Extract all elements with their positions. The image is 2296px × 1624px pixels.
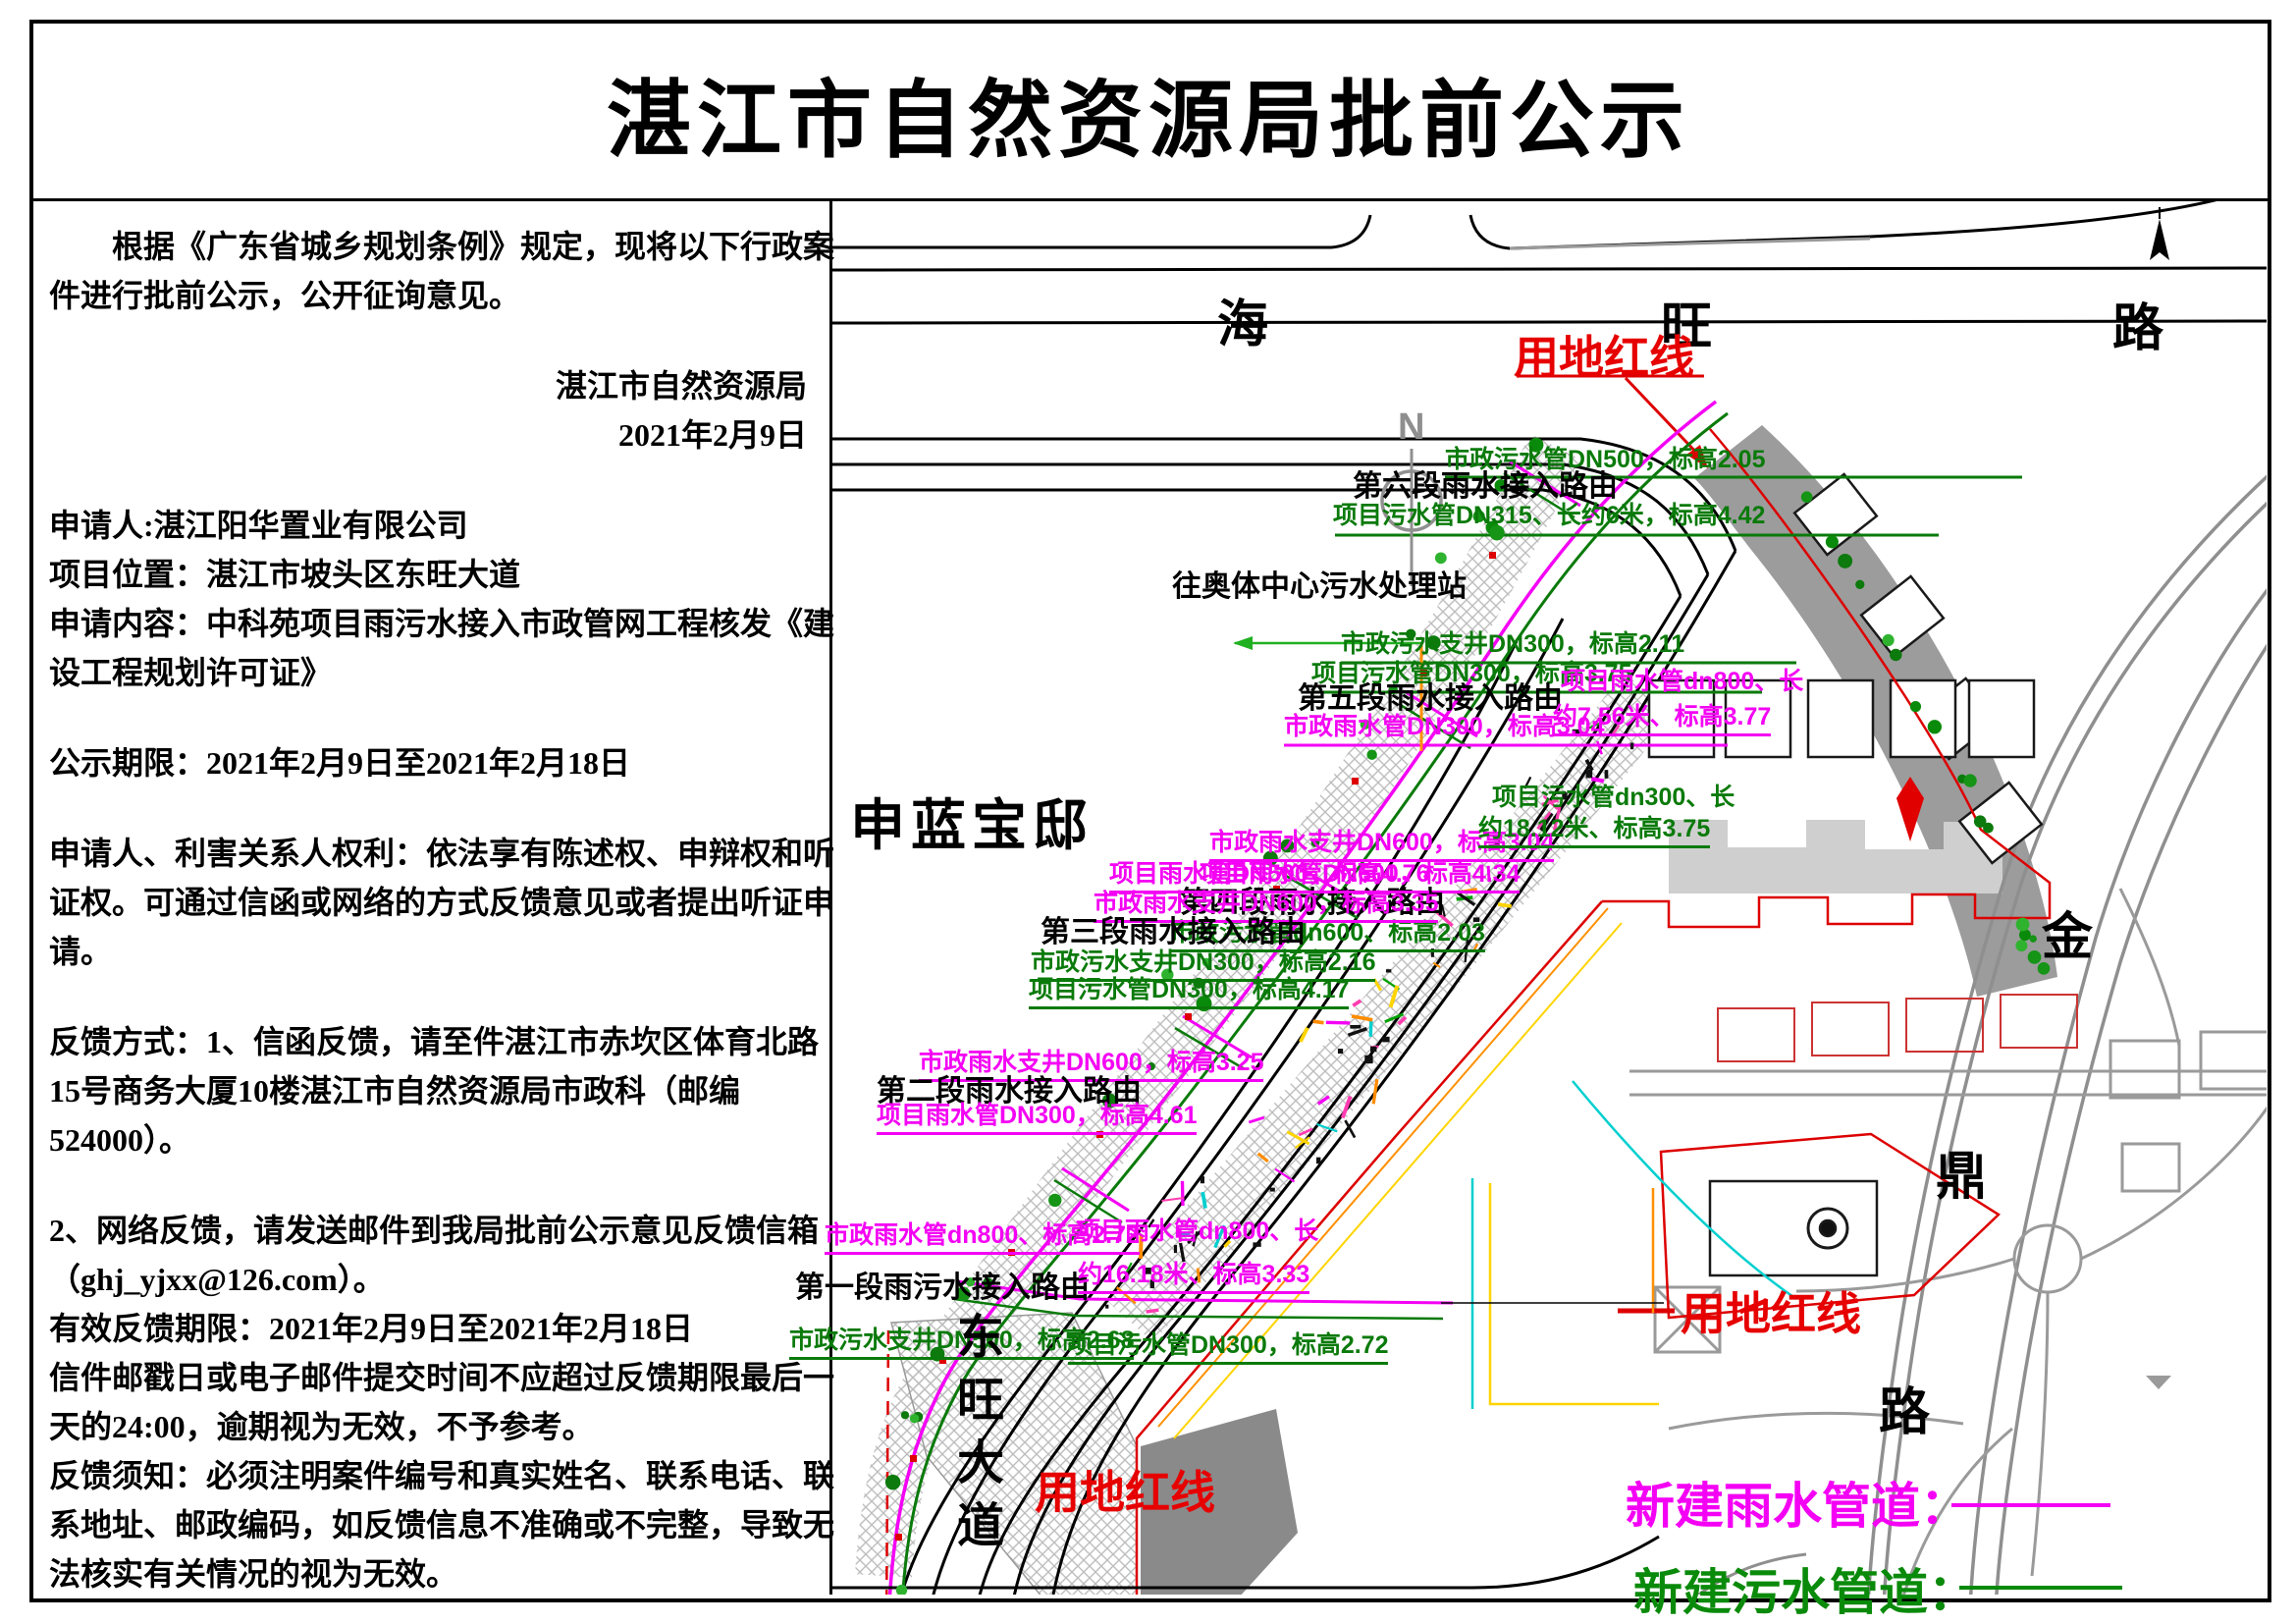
north-arrow-icon xyxy=(2150,207,2169,260)
site-plan-map xyxy=(829,201,2267,1595)
road-haiwang-lines xyxy=(829,201,2267,596)
north-compass-icon xyxy=(1382,449,1441,586)
notice-note: 反馈须知：必须注明案件编号和真实姓名、联系电话、联系地址、邮政编码，如反馈信息不… xyxy=(49,1451,834,1598)
notice-valid-period: 有效反馈期限：2021年2月9日至2021年2月18日 xyxy=(49,1304,834,1353)
notice-content: 申请内容：中科苑项目雨污水接入市政管网工程核发《建设工程规划许可证》 xyxy=(49,599,834,697)
notice-agency: 湛江市自然资源局 xyxy=(49,361,834,410)
notice-feedback-mail: 反馈方式：1、信函反馈，请至件湛江市赤坎区体育北路15号商务大厦10楼湛江市自然… xyxy=(49,1017,834,1164)
bottom-roads xyxy=(829,1537,1806,1595)
notice-period: 公示期限：2021年2月9日至2021年2月18日 xyxy=(49,738,834,787)
notice-text-panel: 根据《广东省城乡规划条例》规定，现将以下行政案件进行批前公示，公开征询意见。 湛… xyxy=(49,222,834,1598)
notice-rights: 申请人、利害关系人权利：依法享有陈述权、申辩权和听证权。可通过信函或网络的方式反… xyxy=(49,829,834,976)
gray-marker-icon xyxy=(2146,1376,2171,1389)
notice-intro: 根据《广东省城乡规划条例》规定，现将以下行政案件进行批前公示，公开征询意见。 xyxy=(49,222,834,320)
notice-deadline-note: 信件邮戳日或电子邮件提交时间不应超过反馈期限最后一天的24:00，逾期视为无效，… xyxy=(49,1353,834,1451)
notice-feedback-web: 2、网络反馈，请发送邮件到我局批前公示意见反馈信箱（ghj_yjxx@126.c… xyxy=(49,1206,834,1304)
notice-applicant: 申请人:湛江阳华置业有限公司 xyxy=(49,501,834,550)
notice-location: 项目位置：湛江市坡头区东旺大道 xyxy=(49,550,834,599)
page-title: 湛江市自然资源局批前公示 xyxy=(29,51,2268,174)
notice-date: 2021年2月9日 xyxy=(49,410,834,460)
public-notice-page: { "title": "湛江市自然资源局批前公示", "notice": { "… xyxy=(0,0,2296,1623)
